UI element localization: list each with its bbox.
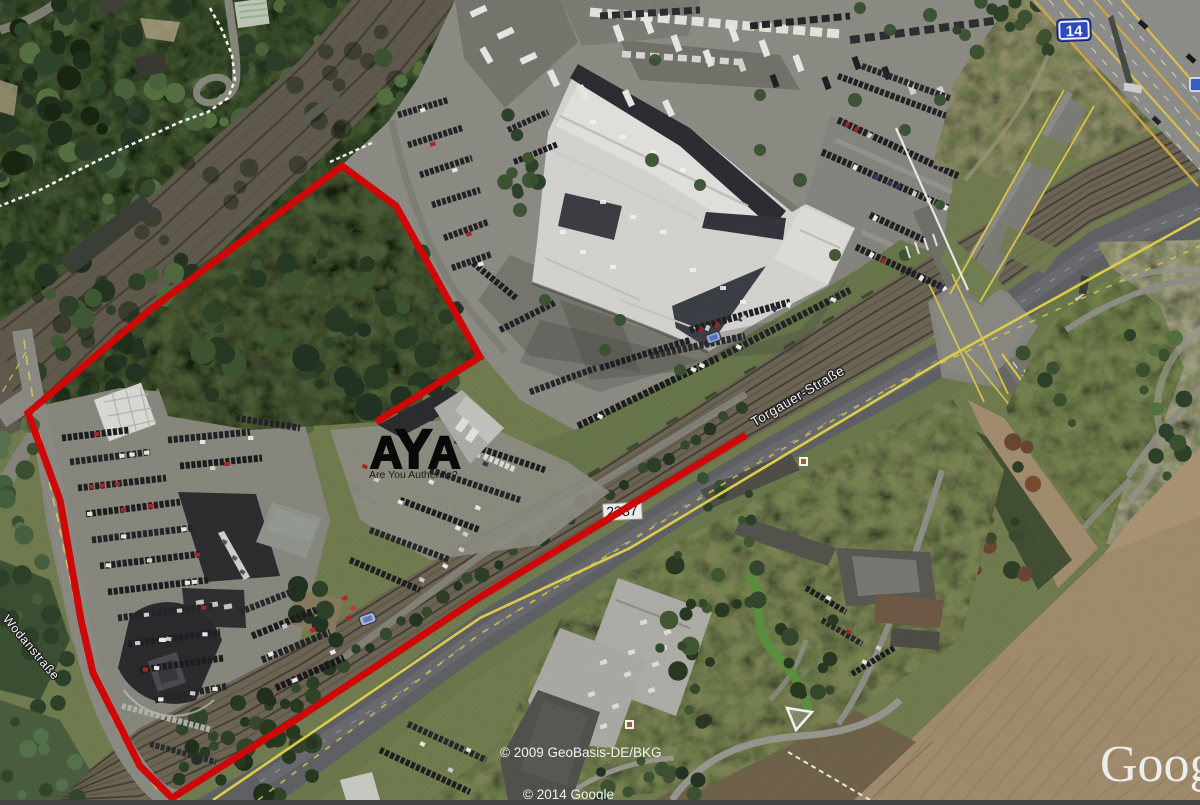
svg-text:© 2009 GeoBasis-DE/BKG: © 2009 GeoBasis-DE/BKG: [500, 745, 662, 760]
svg-text:Google: Google: [1100, 736, 1200, 793]
svg-text:© 2014 Google: © 2014 Google: [523, 787, 614, 800]
svg-text:Are You Authentic?: Are You Authentic?: [369, 469, 458, 481]
svg-text:14: 14: [1065, 23, 1083, 41]
